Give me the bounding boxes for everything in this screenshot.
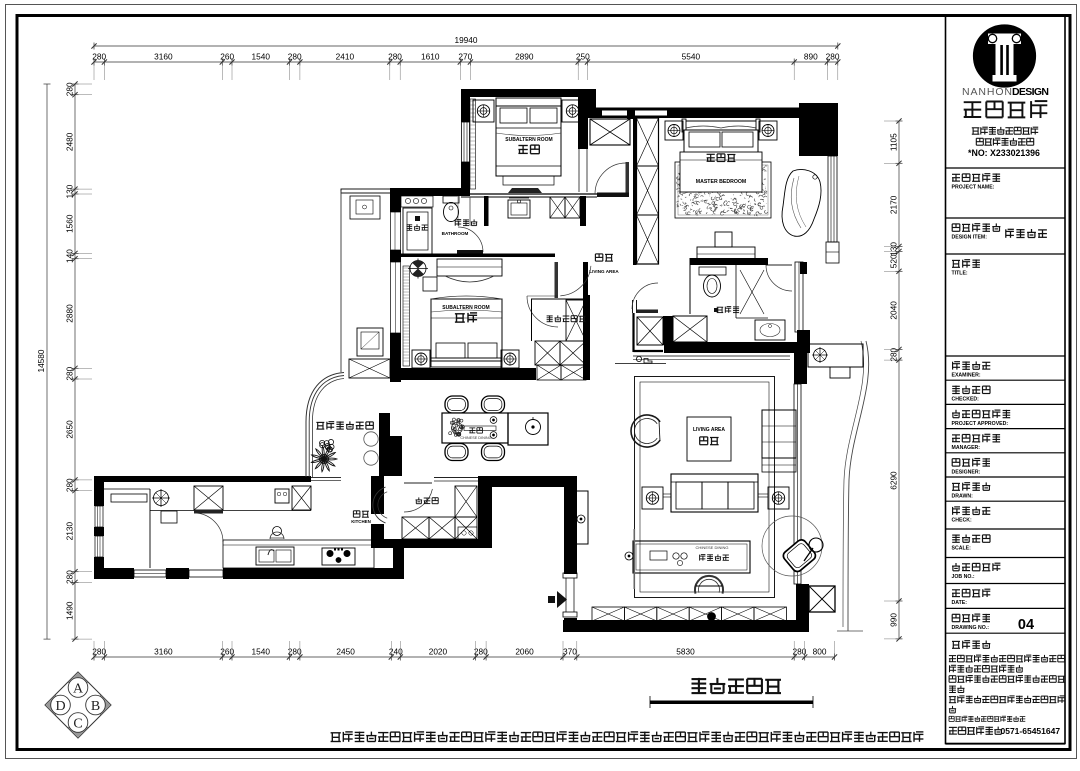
svg-text:EXAMINER:: EXAMINER: bbox=[952, 373, 981, 379]
svg-text:2480: 2480 bbox=[65, 132, 75, 151]
svg-text:890: 890 bbox=[804, 52, 818, 62]
svg-text:PROJECT APPROVED:: PROJECT APPROVED: bbox=[952, 421, 1009, 427]
svg-text:14580: 14580 bbox=[36, 349, 46, 372]
svg-text:2890: 2890 bbox=[515, 52, 534, 62]
svg-text:990: 990 bbox=[889, 613, 899, 627]
svg-text:SUBALTERN ROOM: SUBALTERN ROOM bbox=[442, 305, 489, 311]
svg-text:04: 04 bbox=[1018, 617, 1034, 633]
svg-text:260: 260 bbox=[220, 52, 234, 62]
svg-text:2450: 2450 bbox=[336, 647, 355, 657]
svg-text:SUBALTERN ROOM: SUBALTERN ROOM bbox=[505, 137, 552, 143]
svg-text:TITLE:: TITLE: bbox=[952, 271, 968, 277]
svg-text:2040: 2040 bbox=[889, 301, 899, 320]
svg-text:280: 280 bbox=[288, 52, 302, 62]
svg-text:5540: 5540 bbox=[682, 52, 701, 62]
svg-text:*NO: X233021396: *NO: X233021396 bbox=[968, 148, 1040, 158]
svg-text:1540: 1540 bbox=[252, 647, 271, 657]
svg-text:CHECKED:: CHECKED: bbox=[952, 397, 980, 403]
svg-text:5830: 5830 bbox=[676, 647, 695, 657]
svg-text:CHECK:: CHECK: bbox=[952, 518, 972, 524]
svg-text:2060: 2060 bbox=[515, 647, 534, 657]
svg-text:DESIGN ITEM:: DESIGN ITEM: bbox=[952, 235, 988, 241]
svg-text:2170: 2170 bbox=[889, 195, 899, 214]
svg-text:280: 280 bbox=[65, 570, 75, 584]
svg-text:D: D bbox=[55, 699, 65, 714]
svg-text:1560: 1560 bbox=[65, 214, 75, 233]
svg-text:280: 280 bbox=[65, 366, 75, 380]
svg-text:MASTER BEDROOM: MASTER BEDROOM bbox=[696, 179, 746, 185]
svg-text:PROJECT NAME:: PROJECT NAME: bbox=[952, 185, 995, 191]
svg-text:SCALE:: SCALE: bbox=[952, 546, 972, 552]
svg-text:130: 130 bbox=[65, 184, 75, 198]
svg-text:B: B bbox=[91, 699, 100, 714]
svg-text:140: 140 bbox=[65, 249, 75, 263]
svg-text:CHINESE DINING: CHINESE DINING bbox=[460, 436, 491, 440]
svg-text:1540: 1540 bbox=[252, 52, 271, 62]
svg-text:2880: 2880 bbox=[65, 304, 75, 323]
svg-text:NANHON: NANHON bbox=[962, 86, 1012, 98]
svg-text:2650: 2650 bbox=[65, 420, 75, 439]
svg-text:1610: 1610 bbox=[421, 52, 440, 62]
svg-text:3160: 3160 bbox=[154, 647, 173, 657]
svg-text:DRAWN:: DRAWN: bbox=[952, 494, 974, 500]
svg-text:270: 270 bbox=[458, 52, 472, 62]
svg-text:DRAWING NO.:: DRAWING NO.: bbox=[952, 625, 990, 631]
svg-text:2020: 2020 bbox=[429, 647, 448, 657]
svg-text:280: 280 bbox=[65, 478, 75, 492]
svg-text:370: 370 bbox=[563, 647, 577, 657]
svg-text:2410: 2410 bbox=[336, 52, 355, 62]
svg-text:280: 280 bbox=[826, 52, 840, 62]
svg-text:240: 240 bbox=[389, 647, 403, 657]
svg-text:19940: 19940 bbox=[454, 35, 477, 45]
svg-text:CHINESE DINING: CHINESE DINING bbox=[696, 545, 729, 550]
svg-text:BATHROOM: BATHROOM bbox=[442, 231, 469, 236]
svg-text:LIVING AREA: LIVING AREA bbox=[589, 269, 619, 274]
svg-text:6290: 6290 bbox=[889, 471, 899, 490]
svg-text:520: 520 bbox=[889, 254, 899, 268]
svg-text:280: 280 bbox=[65, 82, 75, 96]
svg-text:3160: 3160 bbox=[154, 52, 173, 62]
svg-text:1105: 1105 bbox=[889, 133, 899, 151]
svg-text:280: 280 bbox=[92, 52, 106, 62]
svg-text:DESIGN: DESIGN bbox=[1012, 86, 1049, 98]
svg-text:LIVING AREA: LIVING AREA bbox=[693, 427, 725, 433]
svg-text:1490: 1490 bbox=[65, 601, 75, 620]
svg-text:800: 800 bbox=[813, 647, 827, 657]
svg-text:280: 280 bbox=[388, 52, 402, 62]
svg-text:2130: 2130 bbox=[65, 522, 75, 541]
svg-text:250: 250 bbox=[576, 52, 590, 62]
svg-text:DATE:: DATE: bbox=[952, 600, 968, 606]
svg-text:MANAGER:: MANAGER: bbox=[952, 445, 981, 451]
svg-text:JOB NO.:: JOB NO.: bbox=[952, 574, 975, 580]
svg-text:0571-65451647: 0571-65451647 bbox=[1001, 726, 1061, 736]
svg-text:C: C bbox=[73, 717, 82, 732]
svg-text:KITCHEN: KITCHEN bbox=[351, 519, 371, 524]
svg-text:DESIGNER:: DESIGNER: bbox=[952, 469, 981, 475]
svg-text:130: 130 bbox=[889, 242, 899, 256]
svg-text:A: A bbox=[73, 682, 84, 697]
